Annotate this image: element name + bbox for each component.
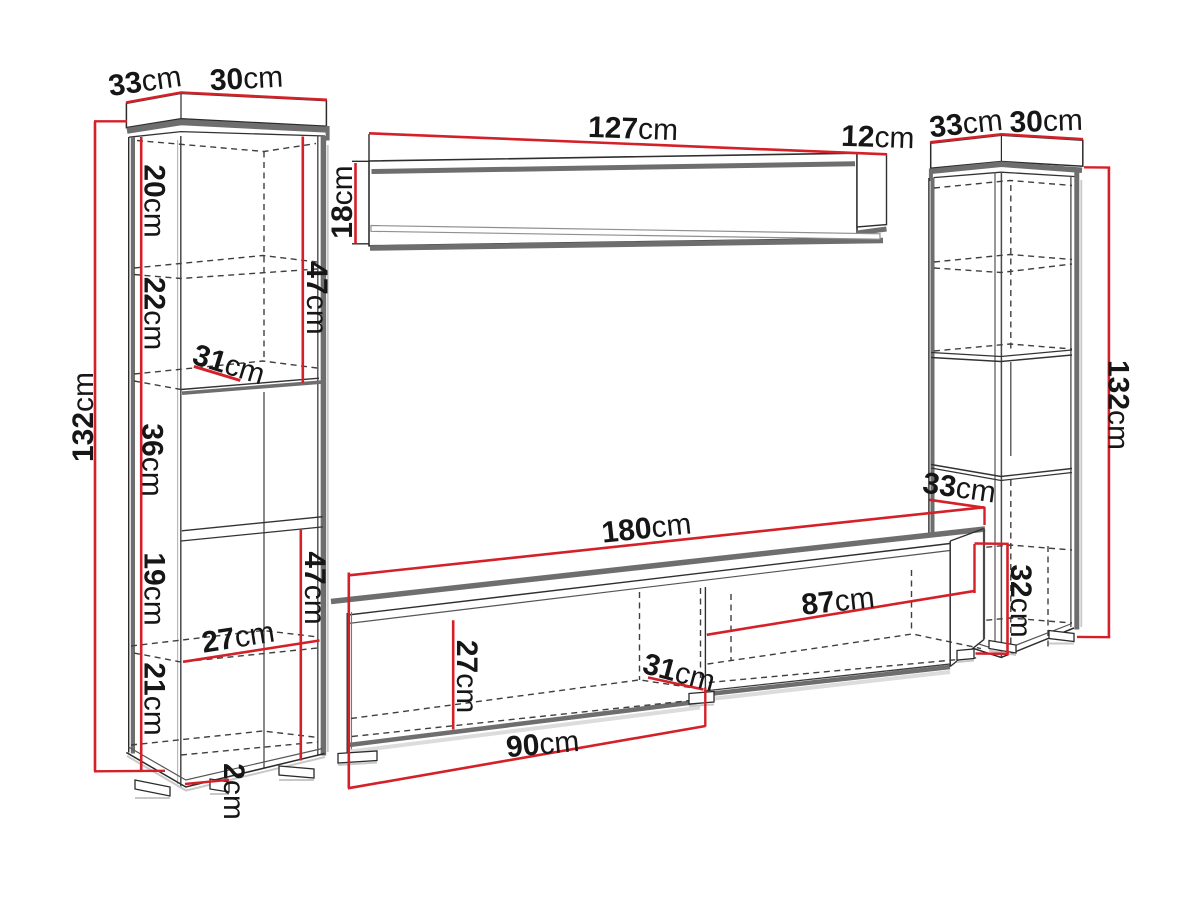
svg-text:19cm: 19cm bbox=[138, 552, 171, 625]
svg-text:2cm: 2cm bbox=[217, 763, 250, 820]
svg-text:36cm: 36cm bbox=[136, 423, 169, 496]
svg-text:47cm: 47cm bbox=[298, 551, 331, 624]
svg-text:22cm: 22cm bbox=[138, 277, 171, 350]
svg-text:18cm: 18cm bbox=[326, 165, 359, 238]
svg-text:30cm: 30cm bbox=[209, 61, 284, 98]
svg-text:90cm: 90cm bbox=[505, 725, 581, 764]
svg-text:132cm: 132cm bbox=[1102, 360, 1135, 450]
svg-text:30cm: 30cm bbox=[1009, 104, 1083, 140]
svg-text:32cm: 32cm bbox=[1004, 564, 1037, 637]
svg-text:20cm: 20cm bbox=[138, 164, 171, 237]
svg-text:21cm: 21cm bbox=[138, 662, 171, 735]
svg-text:47cm: 47cm bbox=[300, 261, 333, 334]
svg-text:27cm: 27cm bbox=[450, 640, 483, 713]
svg-text:127cm: 127cm bbox=[587, 111, 678, 147]
svg-text:132cm: 132cm bbox=[67, 372, 100, 462]
svg-text:12cm: 12cm bbox=[841, 120, 915, 156]
